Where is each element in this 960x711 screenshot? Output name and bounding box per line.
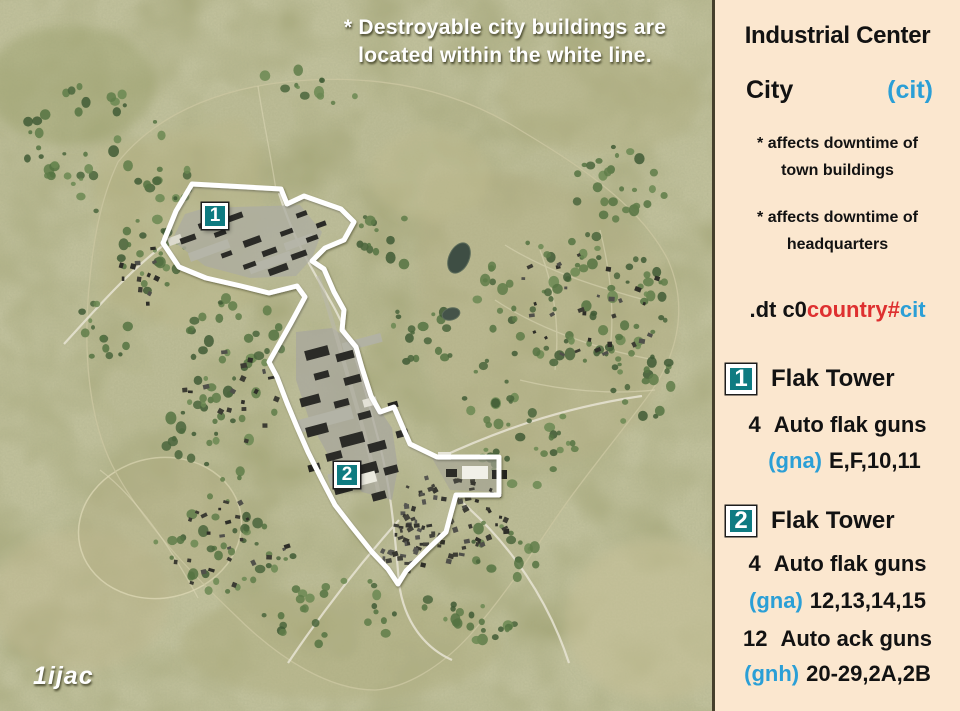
map-note-line2: located within the white line. <box>320 42 690 70</box>
gun-count: 12 <box>743 626 767 651</box>
gun-ids: E,F,10,11 <box>829 448 921 473</box>
gun-count: 4 <box>748 412 760 437</box>
command-country: country# <box>807 297 900 322</box>
section-1-marker: 1 <box>726 364 756 394</box>
section-2-gun-ids-2: (gnh)20-29,2A,2B <box>715 661 960 687</box>
section-2-marker: 2 <box>726 506 756 536</box>
section-2-marker-number: 2 <box>734 507 747 535</box>
terrain-map <box>0 0 712 711</box>
city-label: City <box>746 76 793 105</box>
gun-code: (gnh) <box>744 661 799 686</box>
map-marker-2: 2 <box>334 462 360 488</box>
command-cit: cit <box>900 297 926 322</box>
command-prefix: .dt c0 <box>749 297 806 322</box>
panel-title: Industrial Center <box>715 22 960 50</box>
note-hq-line2: headquarters <box>715 231 960 258</box>
map-credit: 1ijac <box>33 662 94 691</box>
map-area: * Destroyable city buildings are located… <box>0 0 712 711</box>
gun-ids: 20-29,2A,2B <box>806 661 931 686</box>
section-1-header: 1 Flak Tower <box>726 364 895 394</box>
panel-subtitle: City (cit) <box>746 76 933 105</box>
map-note: * Destroyable city buildings are located… <box>320 14 690 70</box>
section-2-gun-ids-1: (gna)12,13,14,15 <box>715 588 960 614</box>
note-town-line1: * affects downtime of <box>715 130 960 157</box>
map-marker-1-number: 1 <box>210 205 221 227</box>
map-marker-2-number: 2 <box>342 464 353 486</box>
section-2-header: 2 Flak Tower <box>726 506 895 536</box>
map-note-line1: * Destroyable city buildings are <box>320 14 690 42</box>
screenshot-root: * Destroyable city buildings are located… <box>0 0 960 711</box>
note-hq-line1: * affects downtime of <box>715 204 960 231</box>
note-town-line2: town buildings <box>715 157 960 184</box>
gun-code: (gna) <box>749 588 803 613</box>
info-panel: Industrial Center City (cit) * affects d… <box>712 0 960 711</box>
note-town: * affects downtime of town buildings <box>715 130 960 184</box>
note-hq: * affects downtime of headquarters <box>715 204 960 258</box>
gun-label: Auto flak guns <box>774 551 927 576</box>
section-1-gun-ids: (gna)E,F,10,11 <box>715 448 960 474</box>
gun-count: 4 <box>748 551 760 576</box>
gun-ids: 12,13,14,15 <box>810 588 926 613</box>
section-2-gun-line-2: 12Auto ack guns <box>715 626 960 652</box>
section-1-marker-number: 1 <box>734 365 747 393</box>
gun-label: Auto ack guns <box>780 626 932 651</box>
city-code: (cit) <box>887 76 933 105</box>
section-2-gun-line-1: 4Auto flak guns <box>715 551 960 577</box>
downtime-command: .dt c0country#cit <box>715 297 960 323</box>
section-2-title: Flak Tower <box>771 507 895 535</box>
gun-code: (gna) <box>768 448 822 473</box>
section-1-title: Flak Tower <box>771 365 895 393</box>
gun-label: Auto flak guns <box>774 412 927 437</box>
map-marker-1: 1 <box>202 203 228 229</box>
section-1-gun-line: 4Auto flak guns <box>715 412 960 438</box>
